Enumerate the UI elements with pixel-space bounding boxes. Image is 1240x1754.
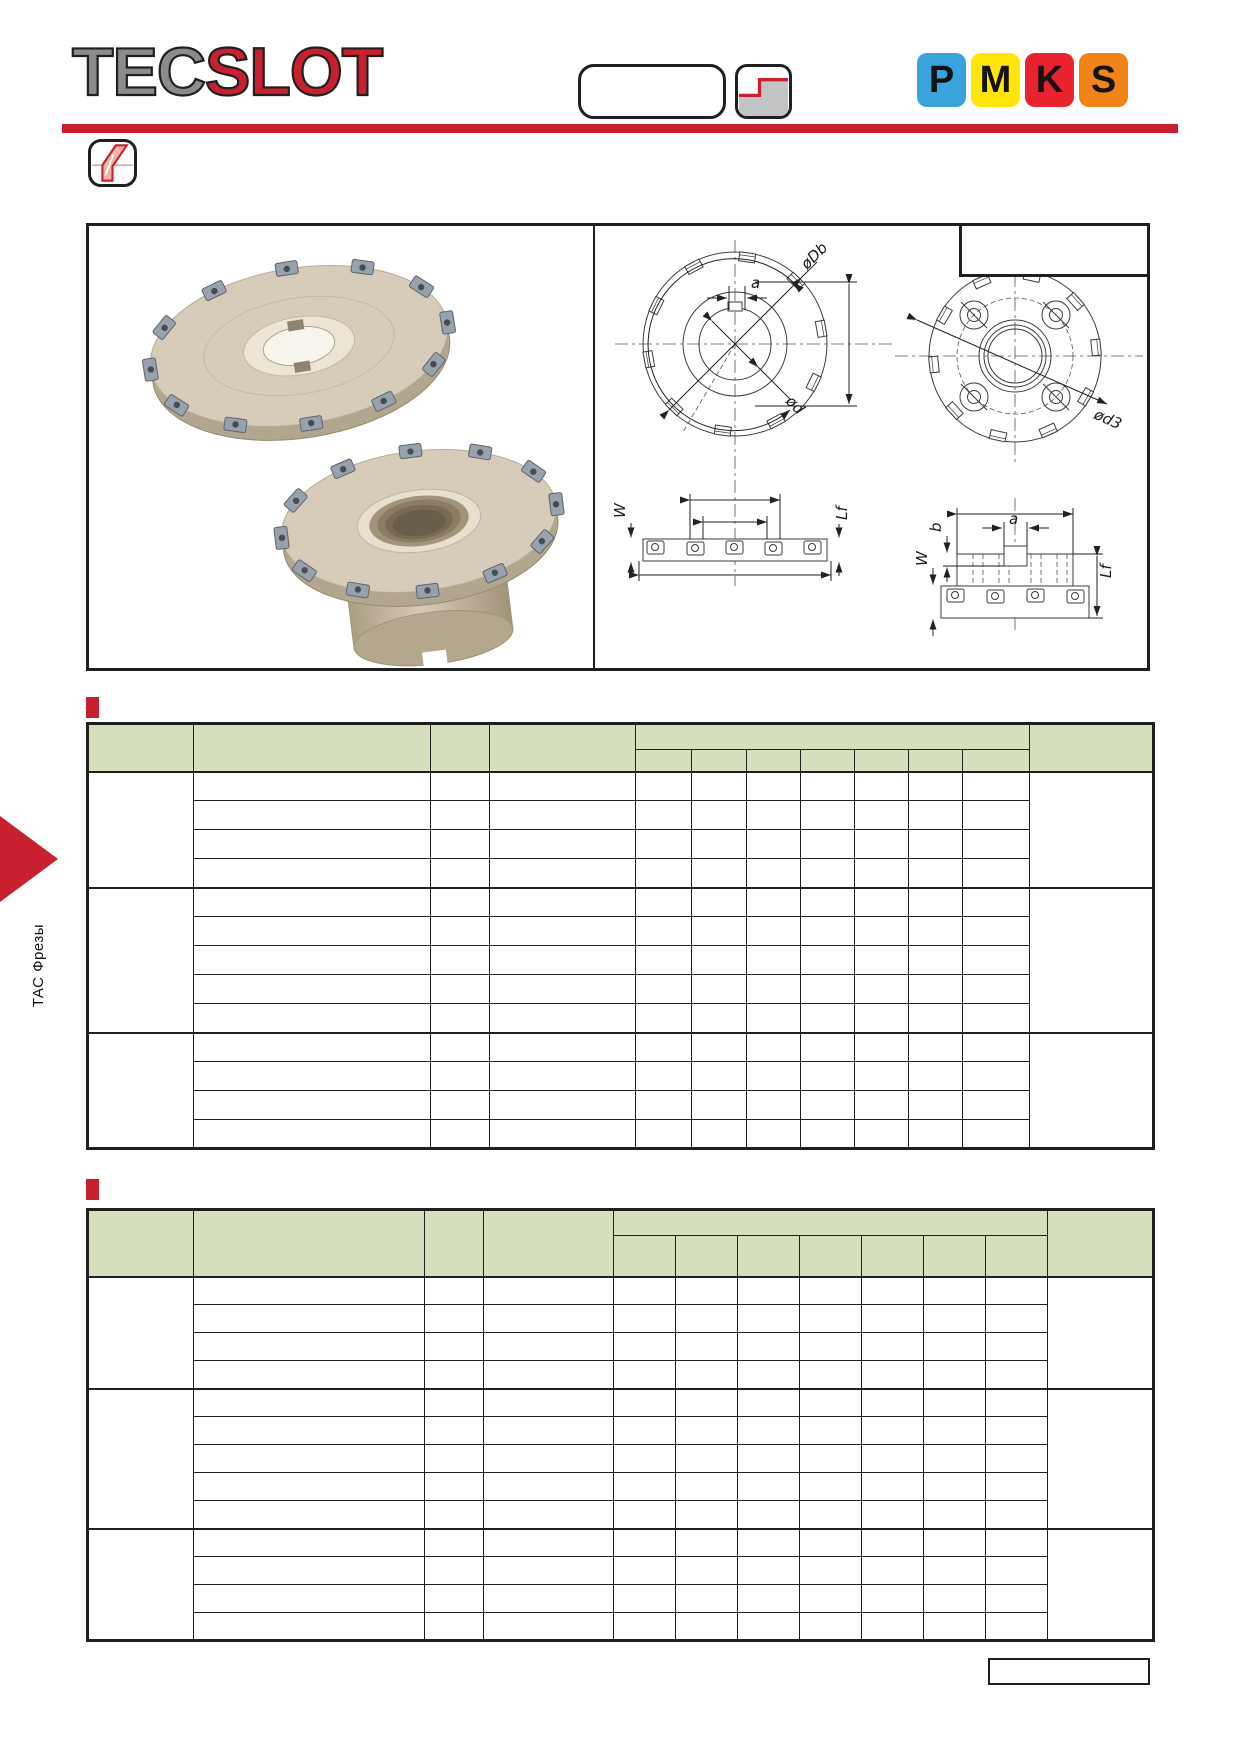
table-cell <box>747 830 801 859</box>
catalog-page: TECSLOT P M K S <box>0 0 1240 1754</box>
table-cell <box>986 1361 1048 1389</box>
table-cell <box>800 1305 862 1333</box>
table-cell <box>636 1120 692 1149</box>
table-cell <box>692 917 747 946</box>
row-group-cell <box>88 1389 194 1529</box>
table-cell <box>614 1417 676 1445</box>
dim-label-odb: øDb <box>796 239 831 274</box>
table-cell <box>855 975 909 1004</box>
table-cell <box>490 888 636 917</box>
table-cell <box>194 772 431 801</box>
table-cell <box>986 1333 1048 1361</box>
header-group-cell <box>614 1210 1048 1236</box>
table-cell <box>855 1062 909 1091</box>
table-cell <box>747 859 801 888</box>
row-group-cell <box>1030 1033 1154 1149</box>
table-cell <box>924 1361 986 1389</box>
table-cell <box>194 1004 431 1033</box>
table-cell <box>855 830 909 859</box>
row-group-cell <box>1030 888 1154 1033</box>
table-cell <box>636 1004 692 1033</box>
table-cell <box>484 1389 614 1417</box>
table-cell <box>676 1417 738 1445</box>
table-cell <box>800 1277 862 1305</box>
table-cell <box>862 1585 924 1613</box>
table-cell <box>909 917 963 946</box>
table-cell <box>431 1091 490 1120</box>
row-group-cell <box>88 772 194 888</box>
table-cell <box>801 1091 855 1120</box>
table-cell <box>963 830 1030 859</box>
table-cell <box>738 1501 800 1529</box>
table-cell <box>614 1557 676 1585</box>
table-cell <box>738 1557 800 1585</box>
header-sub-cell <box>738 1236 800 1277</box>
table-cell <box>855 888 909 917</box>
table-cell <box>862 1361 924 1389</box>
table-cell <box>194 888 431 917</box>
table-cell <box>800 1445 862 1473</box>
table-cell <box>484 1501 614 1529</box>
table-cell <box>986 1501 1048 1529</box>
table-cell <box>490 917 636 946</box>
table-cell <box>738 1529 800 1557</box>
table-cell <box>676 1445 738 1473</box>
table-cell <box>909 830 963 859</box>
table-cell <box>747 772 801 801</box>
table-cell <box>862 1389 924 1417</box>
table-cell <box>924 1305 986 1333</box>
table-cell <box>431 772 490 801</box>
table-cell <box>855 1033 909 1062</box>
table-cell <box>963 975 1030 1004</box>
table-cell <box>194 917 431 946</box>
table-cell <box>692 946 747 975</box>
table-cell <box>484 1333 614 1361</box>
table-cell <box>986 1445 1048 1473</box>
table-cell <box>738 1333 800 1361</box>
table-cell <box>747 917 801 946</box>
table-cell <box>747 801 801 830</box>
material-class-badges: P M K S <box>917 53 1128 107</box>
table-cell <box>924 1445 986 1473</box>
dimension-table-1 <box>86 722 1155 1150</box>
dim-label-od3: ød3 <box>1090 405 1124 433</box>
table-cell <box>800 1333 862 1361</box>
table-cell <box>738 1445 800 1473</box>
table-cell <box>747 1004 801 1033</box>
header-sub-cell <box>855 750 909 772</box>
table-cell <box>963 888 1030 917</box>
table-cell <box>862 1529 924 1557</box>
table-cell <box>194 1557 425 1585</box>
table-cell <box>909 1091 963 1120</box>
table-cell <box>194 859 431 888</box>
header-sub-cell <box>800 1236 862 1277</box>
table-cell <box>194 1091 431 1120</box>
table-cell <box>636 946 692 975</box>
dimension-table-1 <box>86 722 1155 1150</box>
table-cell <box>924 1585 986 1613</box>
brand-logo: TECSLOT <box>72 38 382 106</box>
table-cell <box>431 859 490 888</box>
table-cell <box>636 859 692 888</box>
table-cell <box>614 1613 676 1641</box>
table-cell <box>425 1473 484 1501</box>
table-cell <box>425 1277 484 1305</box>
table-cell <box>801 975 855 1004</box>
table-cell <box>431 1033 490 1062</box>
table-cell <box>862 1557 924 1585</box>
row-group-cell <box>88 1277 194 1389</box>
table-cell <box>636 888 692 917</box>
table-cell <box>676 1613 738 1641</box>
table-cell <box>986 1557 1048 1585</box>
table-cell <box>801 859 855 888</box>
table-cell <box>614 1389 676 1417</box>
table-cell <box>194 801 431 830</box>
section-bullet-2 <box>86 1179 99 1200</box>
header-cell <box>484 1210 614 1277</box>
table-cell <box>855 917 909 946</box>
table-cell <box>963 1033 1030 1062</box>
table-cell <box>747 888 801 917</box>
row-group-cell <box>88 1529 194 1641</box>
dim-label-w-left: W <box>611 502 629 518</box>
table-cell <box>425 1445 484 1473</box>
figure-divider <box>593 226 595 668</box>
header-cell <box>88 1210 194 1277</box>
table-cell <box>747 1120 801 1149</box>
table-cell <box>194 1333 425 1361</box>
table-cell <box>801 946 855 975</box>
header-sub-cell <box>986 1236 1048 1277</box>
material-class-s: S <box>1079 53 1128 107</box>
table-cell <box>194 1445 425 1473</box>
table-cell <box>986 1585 1048 1613</box>
table-cell <box>614 1361 676 1389</box>
table-cell <box>484 1529 614 1557</box>
table-cell <box>747 1062 801 1091</box>
table-cell <box>194 1613 425 1641</box>
table-cell <box>986 1529 1048 1557</box>
table-cell <box>636 917 692 946</box>
table-cell <box>636 975 692 1004</box>
table-cell <box>484 1277 614 1305</box>
table-cell <box>909 975 963 1004</box>
table-cell <box>747 946 801 975</box>
product-figure-panel: øDb ød a <box>86 223 1150 671</box>
table-cell <box>692 1091 747 1120</box>
table-cell <box>738 1417 800 1445</box>
table-cell <box>738 1305 800 1333</box>
table-cell <box>676 1501 738 1529</box>
table-cell <box>747 1033 801 1062</box>
dim-label-w-right: W <box>913 550 931 566</box>
table-cell <box>431 888 490 917</box>
table-cell <box>490 1062 636 1091</box>
header-sub-cell <box>924 1236 986 1277</box>
table-cell <box>800 1389 862 1417</box>
table-cell <box>963 917 1030 946</box>
header-divider-rule <box>62 124 1178 133</box>
table-cell <box>800 1529 862 1557</box>
table-cell <box>862 1305 924 1333</box>
table-cell <box>431 1120 490 1149</box>
row-group-cell <box>1048 1529 1154 1641</box>
table-cell <box>490 1004 636 1033</box>
table-cell <box>484 1613 614 1641</box>
table-cell <box>801 1120 855 1149</box>
table-cell <box>676 1389 738 1417</box>
step-profile-icon <box>735 64 792 119</box>
table-cell <box>909 946 963 975</box>
table-cell <box>963 1062 1030 1091</box>
table-cell <box>801 888 855 917</box>
table-cell <box>676 1361 738 1389</box>
header-sub-cell <box>963 750 1030 772</box>
header-sub-cell <box>801 750 855 772</box>
table-cell <box>490 1091 636 1120</box>
table-cell <box>924 1277 986 1305</box>
table-cell <box>194 1033 431 1062</box>
table-cell <box>490 975 636 1004</box>
table-cell <box>194 946 431 975</box>
header-cell <box>1030 724 1154 772</box>
table-cell <box>855 801 909 830</box>
table-cell <box>747 1091 801 1120</box>
table-cell <box>194 1389 425 1417</box>
header-group-cell <box>636 724 1030 750</box>
table-cell <box>909 1120 963 1149</box>
table-cell <box>194 1417 425 1445</box>
table-cell <box>484 1473 614 1501</box>
table-cell <box>194 975 431 1004</box>
table-cell <box>484 1585 614 1613</box>
table-cell <box>425 1333 484 1361</box>
table-cell <box>800 1557 862 1585</box>
table-cell <box>614 1529 676 1557</box>
header-sub-cell <box>692 750 747 772</box>
table-cell <box>425 1417 484 1445</box>
table-cell <box>490 946 636 975</box>
table-cell <box>614 1501 676 1529</box>
dim-label-b: b <box>927 522 945 532</box>
header-cell <box>431 724 490 772</box>
table-cell <box>986 1277 1048 1305</box>
table-cell <box>801 1004 855 1033</box>
table-cell <box>692 859 747 888</box>
table-cell <box>636 1033 692 1062</box>
table-cell <box>490 772 636 801</box>
table-cell <box>963 946 1030 975</box>
table-cell <box>800 1361 862 1389</box>
table-cell <box>924 1613 986 1641</box>
table-cell <box>909 859 963 888</box>
table-cell <box>963 1091 1030 1120</box>
table-cell <box>431 1062 490 1091</box>
row-group-cell <box>1048 1277 1154 1389</box>
dimension-table-2 <box>86 1208 1155 1642</box>
dim-label-lf-left: Lf <box>833 504 851 520</box>
slot-milling-icon <box>88 139 137 187</box>
row-group-cell <box>1030 772 1154 888</box>
table-cell <box>194 1120 431 1149</box>
row-group-cell <box>88 1033 194 1149</box>
table-cell <box>614 1585 676 1613</box>
table-cell <box>484 1557 614 1585</box>
table-cell <box>738 1277 800 1305</box>
table-cell <box>614 1333 676 1361</box>
table-cell <box>855 946 909 975</box>
table-cell <box>425 1501 484 1529</box>
header-cell <box>88 724 194 772</box>
table-cell <box>738 1613 800 1641</box>
table-cell <box>909 1062 963 1091</box>
table-cell <box>862 1501 924 1529</box>
table-cell <box>194 1501 425 1529</box>
table-cell <box>986 1389 1048 1417</box>
table-cell <box>490 801 636 830</box>
header-cell <box>194 724 431 772</box>
table-cell <box>862 1473 924 1501</box>
table-cell <box>801 772 855 801</box>
dimension-table-2 <box>86 1208 1155 1642</box>
table-cell <box>425 1361 484 1389</box>
brand-logo-slot: SLOT <box>205 34 382 110</box>
shell-cutter-photo <box>266 427 581 668</box>
table-cell <box>855 1004 909 1033</box>
table-cell <box>425 1529 484 1557</box>
table-cell <box>484 1361 614 1389</box>
header-sub-cell <box>862 1236 924 1277</box>
table-cell <box>738 1389 800 1417</box>
table-cell <box>963 801 1030 830</box>
table-cell <box>800 1501 862 1529</box>
disc-cutter-photo <box>131 237 469 461</box>
table-cell <box>425 1585 484 1613</box>
dim-label-od: ød <box>781 391 808 418</box>
table-cell <box>431 801 490 830</box>
table-cell <box>431 975 490 1004</box>
table-cell <box>924 1417 986 1445</box>
table-cell <box>738 1361 800 1389</box>
header-sub-cell <box>747 750 801 772</box>
table-cell <box>431 1004 490 1033</box>
table-cell <box>924 1389 986 1417</box>
table-cell <box>862 1333 924 1361</box>
table-cell <box>194 1361 425 1389</box>
table-cell <box>800 1613 862 1641</box>
table-cell <box>194 1585 425 1613</box>
side-view-right-drawing: a b W Lf <box>913 498 1115 636</box>
table-cell <box>924 1529 986 1557</box>
table-cell <box>425 1613 484 1641</box>
table-cell <box>692 801 747 830</box>
table-cell <box>676 1277 738 1305</box>
table-cell <box>862 1445 924 1473</box>
table-cell <box>855 859 909 888</box>
table-cell <box>963 1120 1030 1149</box>
table-cell <box>855 772 909 801</box>
table-cell <box>676 1585 738 1613</box>
table-cell <box>490 1120 636 1149</box>
header-sub-cell <box>676 1236 738 1277</box>
table-cell <box>862 1417 924 1445</box>
table-cell <box>636 772 692 801</box>
row-group-cell <box>88 888 194 1033</box>
table-cell <box>801 917 855 946</box>
table-cell <box>963 772 1030 801</box>
table-cell <box>801 830 855 859</box>
table-cell <box>676 1473 738 1501</box>
table-cell <box>484 1445 614 1473</box>
table-cell <box>909 1033 963 1062</box>
table-cell <box>636 830 692 859</box>
table-cell <box>986 1473 1048 1501</box>
row-group-cell <box>1048 1389 1154 1529</box>
table-cell <box>909 1004 963 1033</box>
sidebar-section-label: ТАС Фрезы <box>30 924 47 1007</box>
header-sub-cell <box>614 1236 676 1277</box>
header-sub-cell <box>636 750 692 772</box>
table-cell <box>801 801 855 830</box>
table-cell <box>924 1557 986 1585</box>
header-cell <box>1048 1210 1154 1277</box>
table-cell <box>800 1585 862 1613</box>
table-cell <box>800 1473 862 1501</box>
table-cell <box>692 975 747 1004</box>
table-cell <box>431 917 490 946</box>
header-cell <box>194 1210 425 1277</box>
section-tab-arrow-icon <box>0 816 58 902</box>
table-cell <box>425 1389 484 1417</box>
table-cell <box>692 1120 747 1149</box>
table-cell <box>738 1585 800 1613</box>
table-cell <box>614 1305 676 1333</box>
table-cell <box>194 1277 425 1305</box>
table-cell <box>747 975 801 1004</box>
dim-label-a-side: a <box>1009 510 1018 528</box>
table-cell <box>636 1062 692 1091</box>
table-cell <box>490 1033 636 1062</box>
front-view-right-drawing: ød3 <box>895 250 1143 466</box>
table-cell <box>800 1417 862 1445</box>
table-cell <box>692 830 747 859</box>
table-cell <box>692 772 747 801</box>
footer-reference-box <box>988 1658 1150 1685</box>
table-cell <box>909 888 963 917</box>
material-class-k: K <box>1025 53 1074 107</box>
table-cell <box>862 1277 924 1305</box>
tool-shape-box <box>578 64 726 119</box>
table-cell <box>194 830 431 859</box>
table-cell <box>490 859 636 888</box>
table-cell <box>676 1529 738 1557</box>
table-cell <box>855 1091 909 1120</box>
table-cell <box>614 1473 676 1501</box>
front-view-left-drawing: øDb ød a <box>615 239 895 586</box>
table-cell <box>801 1062 855 1091</box>
table-cell <box>692 1004 747 1033</box>
table-cell <box>614 1277 676 1305</box>
section-bullet-1 <box>86 697 99 718</box>
table-cell <box>986 1305 1048 1333</box>
table-cell <box>194 1473 425 1501</box>
table-cell <box>986 1417 1048 1445</box>
table-cell <box>738 1473 800 1501</box>
table-cell <box>692 1062 747 1091</box>
